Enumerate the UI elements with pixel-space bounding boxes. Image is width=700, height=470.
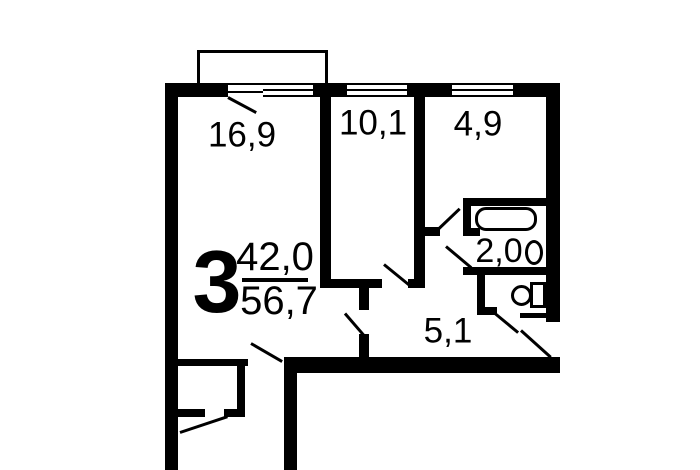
window-living-room (263, 83, 313, 97)
door-swing-living-room (250, 342, 283, 363)
label-rooms-count: 3 (193, 238, 242, 326)
toilet-bowl (511, 285, 532, 306)
wall-bedroom-bottom (320, 279, 382, 288)
door-swing-entrance (520, 329, 552, 358)
wall-living-bedroom-divider (320, 97, 331, 288)
window-pane-line (347, 89, 407, 91)
wall-hallway-lower (359, 334, 369, 360)
wall-living-bottom-thin (178, 359, 248, 366)
wall-bathroom-top (463, 198, 546, 206)
label-total-area: 56,7 (240, 281, 318, 321)
toilet-tank (530, 282, 546, 308)
door-swing-bedroom (383, 263, 412, 287)
label-living-room-area: 16,9 (208, 118, 276, 153)
wall-stairwell-right (284, 357, 297, 470)
balcony-door-sill (228, 91, 263, 93)
door-swing-wc (494, 312, 519, 333)
label-living-area: 42,0 (236, 237, 314, 277)
balcony-outline (197, 50, 328, 86)
door-swing-closet (180, 415, 228, 434)
wall-closet-bottom (178, 409, 205, 417)
window-kitchen (452, 83, 513, 97)
wall-bedroom-kitchen-divider (414, 97, 425, 288)
wall-hallway-upper (359, 288, 369, 310)
window-pane-line (452, 89, 513, 91)
wall-wc-bottom-right (520, 313, 546, 318)
window-pane-line (263, 89, 313, 91)
wall-right-upper (546, 83, 560, 322)
door-swing-kitchen (437, 208, 461, 231)
label-hallway-area: 5,1 (424, 314, 473, 349)
wall-left (165, 83, 178, 470)
apartment-floor-plan: 16,9 10,1 4,9 2,0 5,1 3 42,0 56,7 (0, 0, 700, 470)
door-swing-hallway-living (344, 313, 365, 337)
sink (525, 240, 543, 265)
door-swing-balcony (227, 96, 257, 114)
label-bedroom-area: 10,1 (339, 106, 407, 141)
label-kitchen-area: 4,9 (454, 107, 503, 142)
door-swing-bathroom (445, 245, 472, 269)
label-bathroom-area: 2,0 (475, 234, 522, 268)
window-bedroom (347, 83, 407, 97)
bathtub (475, 207, 537, 231)
wall-bottom (284, 357, 560, 373)
balcony-door-opening (228, 83, 263, 97)
